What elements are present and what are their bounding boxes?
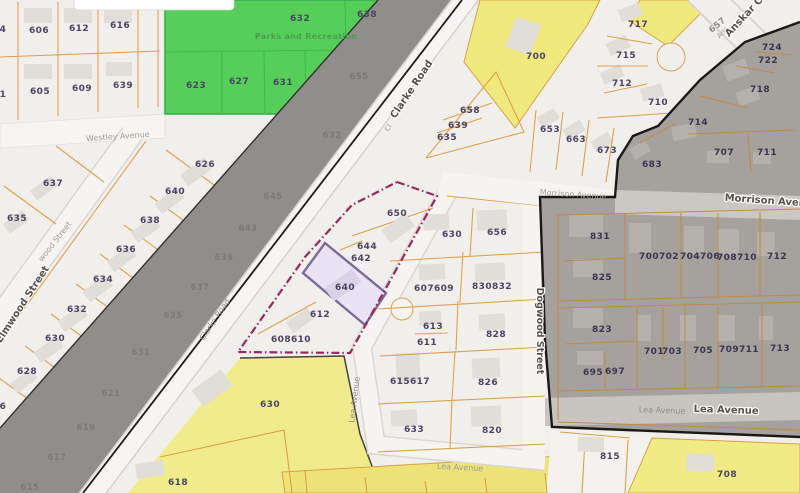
parcel-label: 606 (29, 26, 49, 36)
parcel-label: 820 (482, 426, 502, 436)
parcel-label: 605 (30, 87, 50, 97)
parcel-label: 712 (767, 252, 787, 262)
parcel-label: 815 (600, 452, 620, 462)
parcel-label: 642 (351, 254, 371, 264)
parcel-label: 635 (7, 214, 27, 224)
street-label-lea-zone-bold: Lea Avenue (693, 404, 759, 417)
yellow-area-708[interactable] (628, 438, 800, 493)
parcel-label: 632 (290, 14, 310, 24)
parcel-label: 711 (757, 148, 777, 158)
parcel-label: 608610 (271, 335, 311, 345)
parcel-label: 704706 (680, 252, 720, 262)
parcel-label: 650 (387, 209, 407, 219)
parcel-label-faint: 632 (323, 131, 342, 141)
parcel-label: 612 (69, 24, 89, 34)
street-label-lea-zone-faint: Lea Avenue (639, 405, 686, 416)
parcel-label-faint: 639 (215, 253, 234, 263)
parcel-label: 658 (460, 106, 480, 116)
parcel-label-faint: 637 (191, 283, 210, 293)
parcel-label: 633 (404, 425, 424, 435)
parcel-label: 607609 (414, 284, 454, 294)
parcel-label-faint: 621 (102, 389, 121, 399)
parcel-label: 708 (717, 470, 737, 480)
parcel-label: 663 (566, 135, 586, 145)
parcel-label: 710 (648, 98, 668, 108)
parcel-label: 683 (642, 160, 662, 170)
parcel-label: 637 (43, 179, 63, 189)
parcel-label: 826 (478, 378, 498, 388)
parcel-label-faint: 631 (132, 348, 151, 358)
parcel-label: 701 (644, 347, 664, 357)
parcel-label: 697 (605, 367, 625, 377)
parcel-label-faint: 655 (350, 72, 369, 82)
parcel-label: 609 (72, 84, 92, 94)
parcel-label: 623 (186, 81, 206, 91)
parcel-label: 634 (93, 275, 113, 285)
parcel-label: 639 (448, 121, 468, 131)
parcel-label: 712 (612, 79, 632, 89)
parcel-label: 616 (110, 21, 130, 31)
parcel-label: 1 (0, 90, 6, 100)
parcel-label: 709711 (719, 345, 759, 355)
parcel-label: 631 (273, 78, 293, 88)
street-bulb (391, 298, 413, 320)
selected-parcel-label: 640 (335, 283, 355, 293)
parcel-label: 700 (526, 52, 546, 62)
parcel-label: 644 (357, 242, 377, 252)
parcel-label: 632 (67, 305, 87, 315)
parcel-label: 713 (770, 344, 790, 354)
parcel-label-faint: 615 (21, 483, 40, 493)
parcel-label-faint: 617 (48, 453, 67, 463)
parcel-label: 630 (260, 400, 280, 410)
parcel-label: 705 (693, 346, 713, 356)
parcel-label: 638 (140, 216, 160, 226)
parcel-label: 724 (762, 43, 782, 53)
parcel-label-faint: 645 (264, 192, 283, 202)
parcel-label-faint: 635 (164, 311, 183, 321)
parcel-label: 628 (17, 367, 37, 377)
parcel-label: 613 (423, 322, 443, 332)
cul-de-sac (657, 43, 685, 71)
parcel-label: 695 (583, 368, 603, 378)
parcel-label: 722 (758, 56, 778, 66)
street-label-dogwood: Dogwood Street (534, 288, 545, 375)
parcel-label: 717 (628, 20, 648, 30)
parcel-label: 707 (714, 148, 734, 158)
parcel-label: 830832 (472, 282, 512, 292)
parcel-label: 708710 (717, 253, 757, 263)
parcel-label: 630 (442, 230, 462, 240)
parcel-label: 715 (616, 51, 636, 61)
parcel-label: 673 (597, 146, 617, 156)
parcel-label: 823 (592, 325, 612, 335)
parcel-label: 656 (487, 228, 507, 238)
parcel-label: 627 (229, 77, 249, 87)
parcel-label: 703 (662, 347, 682, 357)
parcel-label: 831 (590, 232, 610, 242)
parcel-label: 714 (688, 118, 708, 128)
parcel-label: 612 (310, 310, 330, 320)
parcel-label: 611 (417, 338, 437, 348)
parcel-label: 718 (750, 85, 770, 95)
parcel-label: 635 (437, 133, 457, 143)
parcel-label: 828 (486, 330, 506, 340)
parcel-label: 825 (592, 273, 612, 283)
parcel-label-faint: 619 (77, 423, 96, 433)
parcel-label: 4 (0, 25, 6, 35)
parcel-label: 700702 (639, 252, 679, 262)
parcel-label: 638 (357, 10, 377, 20)
parcel-map[interactable]: 4 606 612 616 1 605 609 639 637 635 626 … (0, 0, 800, 493)
map-viewport[interactable]: 4 606 612 616 1 605 609 639 637 635 626 … (0, 0, 800, 493)
parcel-label: 653 (540, 125, 560, 135)
parcel-label: 636 (116, 245, 136, 255)
parcel-label: 615617 (390, 377, 430, 387)
parcel-label: 626 (195, 160, 215, 170)
parcel-label: 639 (113, 81, 133, 91)
parcel-label: 630 (45, 334, 65, 344)
parcel-label-faint: 643 (239, 224, 258, 234)
parcel-label: 640 (165, 187, 185, 197)
parcel-label: 6 (0, 402, 6, 412)
park-area-label: Parks and Recreation (255, 32, 357, 41)
popup-remnant (74, 0, 234, 10)
parcel-label: 618 (168, 478, 188, 488)
